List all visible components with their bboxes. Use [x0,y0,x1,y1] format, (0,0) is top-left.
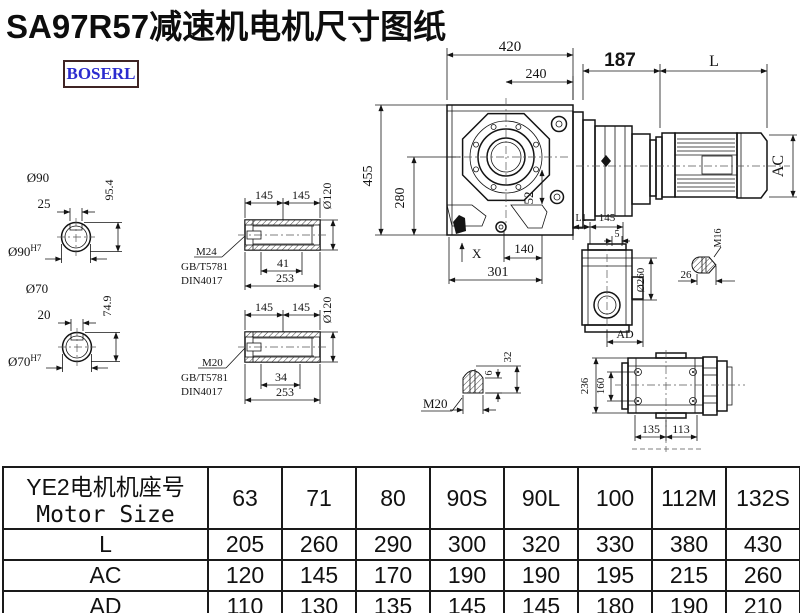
sleeve20-145b-label: 145 [292,300,310,314]
table-cell: 145 [504,591,578,613]
oil-plug-icon [453,215,466,234]
sleeve24-dia120-label: Ø120 [320,183,334,210]
fit70-sup: H7 [30,353,41,363]
dim280-label: 280 [393,188,408,209]
dim135-label: 135 [642,422,660,436]
table-cell: 120 [208,560,282,591]
m24-label: M24 [196,246,217,258]
table-cell: 180 [578,591,652,613]
dimL-label: L [709,53,719,70]
sleeve20-34-label: 34 [275,370,287,384]
drawing-sheet: SA97R57减速机电机尺寸图纸 BOSERL [0,0,800,613]
fit90-sup: H7 [30,243,41,253]
dim113-label: 113 [672,422,690,436]
table-cell: 170 [356,560,430,591]
col-header: 90S [430,467,504,529]
dim301-label: 301 [488,265,509,280]
table-row-AD: AD 110 130 135 145 145 180 190 210 [3,591,800,613]
key25-label: 25 [38,196,51,211]
m24-std2-label: DIN4017 [181,275,223,287]
col-header: 71 [282,467,356,529]
sleeve20-dia120-label: Ø120 [320,297,334,324]
fit70-base: Ø70 [8,354,30,369]
table-cell: 190 [504,560,578,591]
motor-size-table: YE2电机机座号 Motor Size 63 71 80 90S 90L 100… [2,466,800,613]
dim420-label: 420 [499,39,522,55]
dim240-label: 240 [526,67,547,82]
dim187-label: 187 [604,50,636,71]
dim455-label: 455 [361,166,376,187]
dim5-label: 5 [615,229,620,240]
table-cell: 205 [208,529,282,560]
table-cell: 110 [208,591,282,613]
x-marker-label: X [472,246,482,261]
table-header-row: YE2电机机座号 Motor Size 63 71 80 90S 90L 100… [3,467,800,529]
dim145-side-label: 145 [599,212,616,224]
shaft-section-90: Ø90 25 95.4 Ø90H7 [8,170,122,263]
table-cell: 145 [430,591,504,613]
col-header: 90L [504,467,578,529]
motor-size-table-wrap: YE2电机机座号 Motor Size 63 71 80 90S 90L 100… [2,466,798,613]
table-header-motor-size: YE2电机机座号 Motor Size [3,467,208,529]
table-cell: 130 [282,591,356,613]
dia70-label: Ø70 [26,281,48,296]
sleeve24-145b-label: 145 [292,188,310,202]
sleeve-view-m20: 145 145 Ø120 34 253 M20 GB/T5781 DIN4017 [181,297,338,404]
table-cell: 145 [282,560,356,591]
dim32-label: 32 [502,352,514,363]
header-en: Motor Size [4,502,207,528]
fit90-base: Ø90 [8,244,30,259]
dim6-label: 6 [484,371,495,376]
header-cn: YE2电机机座号 [4,468,207,502]
m16-label: M16 [713,229,724,248]
table-cell: 135 [356,591,430,613]
table-cell: 195 [578,560,652,591]
table-row-AC: AC 120 145 170 190 190 195 215 260 [3,560,800,591]
dim26-label: 26 [681,269,693,281]
table-cell: 300 [430,529,504,560]
col-header: 63 [208,467,282,529]
fit70h7-label: Ø70H7 [8,353,42,369]
m20-detail-label: M20 [423,396,448,411]
col-header: 80 [356,467,430,529]
dim140-label: 140 [514,241,534,256]
key20-label: 20 [38,307,51,322]
m24-std1-label: GB/T5781 [181,261,228,273]
table-cell: 210 [726,591,800,613]
bolt-m16-detail: M16 26 [678,229,735,285]
dim95-4-label: 95.4 [102,180,116,201]
sleeve20-253-label: 253 [276,385,294,399]
fit90h7-label: Ø90H7 [8,243,42,259]
m20-std1-label: GB/T5781 [181,372,228,384]
col-header: 132S [726,467,800,529]
table-cell: 215 [652,560,726,591]
table-row-L: L 205 260 290 300 320 330 380 430 [3,529,800,560]
motor-side-view: 187 L AC [576,50,797,220]
gearbox-front-view: 420 240 455 280 52 140 301 X [361,39,583,284]
row-label: AC [3,560,208,591]
dim52-label: 52 [521,192,536,205]
table-cell: 260 [726,560,800,591]
table-cell: 330 [578,529,652,560]
dim160-label: 160 [595,377,607,394]
shaft-section-70: Ø70 20 74.9 Ø70H7 [8,281,120,372]
dia260-label: Ø260 [635,267,647,292]
row-label: AD [3,591,208,613]
col-header: 100 [578,467,652,529]
vent-plug-icon [601,155,611,167]
table-cell: 260 [282,529,356,560]
sleeve24-253-label: 253 [276,271,294,285]
sleeve24-145a-label: 145 [255,188,273,202]
sleeve20-145a-label: 145 [255,300,273,314]
table-cell: 190 [652,591,726,613]
sleeve24-41-label: 41 [277,256,289,270]
m20-label: M20 [202,357,223,369]
dim236-label: 236 [579,377,591,394]
row-label: L [3,529,208,560]
dimAD-label: AD [616,327,634,341]
dimL1-label: L1 [575,213,586,224]
sleeve-view-m24: 145 145 Ø120 41 253 M24 GB/T5781 DIN4017 [181,183,338,290]
dia90-label: Ø90 [27,170,49,185]
gearbox-side-view: L1 145 5 Ø260 AD [573,212,657,347]
dim74-9-label: 74.9 [100,296,114,317]
table-cell: 190 [430,560,504,591]
col-header: 112M [652,467,726,529]
table-cell: 380 [652,529,726,560]
m20-std2-label: DIN4017 [181,386,223,398]
gearbox-rear-view: 236 160 135 113 [579,350,745,452]
table-cell: 320 [504,529,578,560]
table-cell: 290 [356,529,430,560]
dimAC-label: AC [770,155,787,177]
table-cell: 430 [726,529,800,560]
bolt-m20-detail: M20 6 32 [421,352,521,415]
